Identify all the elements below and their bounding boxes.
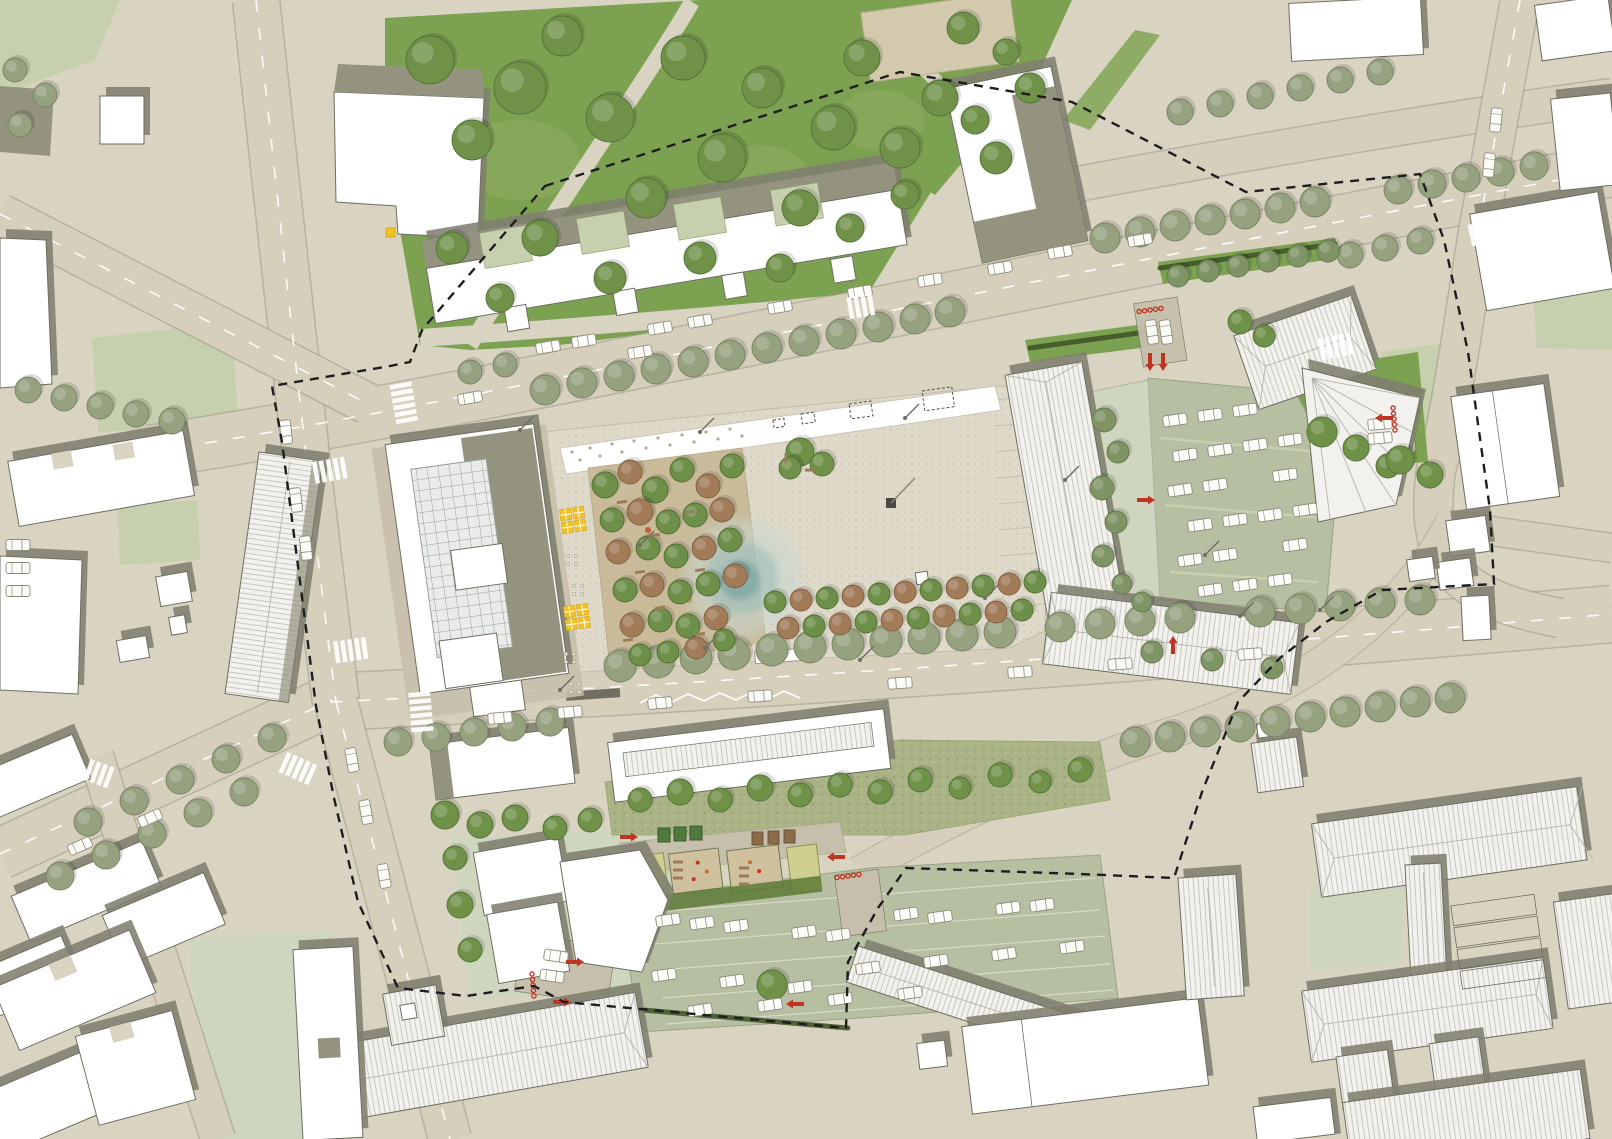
car: [289, 487, 302, 512]
tree-highlight: [505, 808, 517, 820]
mosaic-pebble: [716, 437, 719, 440]
car-body: [1489, 108, 1502, 133]
car: [488, 711, 513, 724]
cafe-table: [564, 652, 568, 656]
tree-highlight: [682, 351, 696, 365]
site-plan-svg: [0, 0, 1612, 1139]
tree-highlight: [450, 895, 462, 907]
tree-highlight: [991, 766, 1002, 777]
tree-highlight: [608, 654, 622, 668]
tree-highlight: [1289, 598, 1303, 612]
light-pole-base: [903, 416, 907, 420]
tree-highlight: [90, 396, 102, 408]
tree-highlight: [188, 803, 201, 816]
tree-highlight: [793, 330, 807, 344]
tree-highlight: [631, 791, 642, 802]
building: [1289, 0, 1430, 61]
tree-highlight: [36, 86, 47, 97]
bench: [739, 875, 749, 878]
tree-highlight: [170, 770, 183, 783]
tree-highlight: [1370, 62, 1382, 74]
mosaic-pebble: [620, 450, 623, 453]
cafe-table: [572, 652, 576, 656]
tree-highlight: [18, 380, 30, 392]
tree-highlight: [1250, 86, 1262, 98]
light-pole-base: [698, 430, 702, 434]
cafe-table: [580, 592, 584, 596]
tree-highlight: [747, 73, 765, 91]
tree-highlight: [871, 586, 881, 596]
tree-highlight: [813, 455, 824, 466]
tree-highlight: [1210, 94, 1222, 106]
car: [1238, 648, 1263, 661]
tree-highlight: [670, 782, 682, 794]
tree-highlight: [1169, 607, 1183, 621]
light-pole-base: [1318, 608, 1322, 612]
tree-highlight: [501, 69, 524, 92]
tree-highlight: [1524, 156, 1537, 169]
play-element: [645, 527, 651, 533]
tree-highlight: [50, 866, 63, 879]
tree-highlight: [791, 786, 802, 797]
car: [748, 690, 773, 703]
tree-highlight: [1290, 78, 1302, 90]
tree-highlight: [1304, 191, 1318, 205]
tree-highlight: [1204, 652, 1214, 662]
tree-highlight: [621, 463, 632, 474]
cafe-table: [574, 562, 578, 566]
mosaic-pebble: [692, 440, 695, 443]
light-pole-base: [983, 596, 987, 600]
tree-highlight: [496, 356, 507, 367]
tree-highlight: [1249, 601, 1263, 615]
tree-highlight: [609, 543, 620, 554]
tree-highlight: [1032, 774, 1042, 784]
tree-highlight: [6, 61, 17, 72]
tree-highlight: [679, 617, 690, 628]
tree-highlight: [1299, 706, 1313, 720]
tree-highlight: [1329, 595, 1343, 609]
mosaic-pebble: [570, 450, 573, 453]
car-body: [1008, 666, 1033, 679]
tree-highlight: [885, 133, 903, 151]
tree-highlight: [988, 604, 998, 614]
tree-highlight: [603, 511, 614, 522]
cafe-table: [577, 682, 581, 686]
tree-highlight: [592, 100, 614, 122]
tree-highlight: [695, 539, 706, 550]
tree-highlight: [840, 218, 853, 231]
tree-highlight: [688, 640, 698, 650]
tree-highlight: [1369, 696, 1383, 710]
mosaic-pebble: [632, 439, 635, 442]
bench: [739, 883, 749, 886]
tree-highlight: [598, 266, 612, 280]
light-pole-base: [1238, 614, 1242, 618]
tree-highlight: [581, 811, 592, 822]
tree-highlight: [830, 323, 844, 337]
mosaic-pebble: [656, 436, 659, 439]
tree-highlight: [950, 623, 964, 637]
tree-highlight: [910, 610, 920, 620]
tree-highlight: [923, 582, 933, 592]
building: [1450, 374, 1566, 510]
cafe-table: [569, 690, 573, 694]
tree-highlight: [927, 85, 943, 101]
tree-highlight: [660, 644, 670, 654]
tree-highlight: [832, 616, 842, 626]
tree-highlight: [162, 411, 174, 423]
tree-highlight: [713, 501, 724, 512]
hip-roof-housing: [1177, 865, 1250, 1000]
tree-highlight: [806, 618, 816, 628]
tree-highlight: [1093, 479, 1104, 490]
tree-highlight: [699, 575, 710, 586]
car-body: [6, 586, 30, 597]
tree-highlight: [667, 42, 687, 62]
light-pole-base: [703, 646, 707, 650]
tree-highlight: [645, 480, 657, 492]
building: [1435, 548, 1480, 590]
kiosk: [386, 228, 395, 237]
tree-highlight: [760, 638, 774, 652]
car: [1482, 153, 1495, 178]
tree-highlight: [793, 592, 803, 602]
car-body: [488, 711, 513, 724]
cafe-table: [566, 554, 570, 558]
tree-highlight: [632, 647, 642, 657]
tree-highlight: [761, 974, 775, 988]
tree-highlight: [595, 475, 607, 487]
tree-highlight: [1071, 761, 1082, 772]
tree-highlight: [936, 608, 946, 618]
bench: [673, 861, 683, 864]
tree-highlight: [756, 337, 770, 351]
cafe-table: [569, 682, 573, 686]
tree-highlight: [1320, 243, 1330, 253]
tree-highlight: [673, 461, 684, 472]
tree-highlight: [1256, 328, 1266, 338]
tree-highlight: [1135, 595, 1144, 604]
tree-highlight: [770, 258, 783, 271]
tree-highlight: [962, 606, 972, 616]
tree-highlight: [895, 185, 908, 198]
cafe-table: [577, 690, 581, 694]
tree-highlight: [1311, 421, 1325, 435]
tree-highlight: [78, 812, 91, 825]
bench: [785, 453, 788, 463]
mosaic-pebble: [680, 433, 683, 436]
tree-highlight: [1410, 231, 1422, 243]
tree-highlight: [884, 612, 894, 622]
tree-highlight: [435, 805, 448, 818]
tree-highlight: [874, 629, 888, 643]
car-body: [6, 563, 30, 574]
light-pole-base: [1063, 478, 1067, 482]
mosaic-pebble: [740, 434, 743, 437]
car: [648, 696, 673, 709]
light-pole-base: [1203, 553, 1207, 557]
tree-highlight: [984, 146, 998, 160]
tree-highlight: [643, 576, 654, 587]
car: [1008, 666, 1033, 679]
car-body: [888, 677, 913, 690]
tree-highlight: [571, 372, 585, 386]
tree-highlight: [787, 195, 803, 211]
roof-court: [576, 211, 629, 254]
tree-highlight: [1420, 465, 1432, 477]
tree-highlight: [711, 791, 722, 802]
car-body: [1368, 431, 1393, 444]
tree-highlight: [547, 21, 565, 39]
bench: [673, 877, 683, 880]
tree-highlight: [1230, 258, 1240, 268]
bench: [673, 869, 683, 872]
tree-highlight: [1144, 644, 1154, 654]
tree-highlight: [216, 749, 229, 762]
tree-highlight: [949, 580, 959, 590]
mosaic-pebble: [704, 430, 707, 433]
roof-court: [673, 197, 726, 240]
tree-highlight: [699, 477, 710, 488]
tree-highlight: [1330, 70, 1342, 82]
car: [888, 677, 913, 690]
light-pole-base: [638, 543, 642, 547]
tree-highlight: [96, 845, 109, 858]
tree-highlight: [457, 125, 475, 143]
cafe-table: [564, 660, 568, 664]
tree-highlight: [1346, 438, 1358, 450]
tree-highlight: [951, 16, 965, 30]
tree-highlight: [1194, 721, 1208, 735]
tree-highlight: [671, 583, 682, 594]
tree-highlight: [262, 728, 275, 741]
tree-highlight: [1095, 411, 1106, 422]
tree-highlight: [440, 236, 454, 250]
tree-highlight: [667, 547, 678, 558]
light-pole-base: [518, 428, 522, 432]
light-pole-base: [858, 658, 862, 662]
tree-highlight: [1014, 602, 1024, 612]
tree-highlight: [1290, 248, 1300, 258]
tree-highlight: [726, 567, 737, 578]
tree-highlight: [1340, 245, 1352, 257]
tree-highlight: [470, 815, 482, 827]
car: [1108, 658, 1133, 671]
tree-highlight: [719, 344, 733, 358]
tree-highlight: [1456, 168, 1469, 181]
tree-highlight: [1390, 450, 1403, 463]
tree-highlight: [490, 288, 503, 301]
tree-highlight: [1001, 576, 1011, 586]
tree-highlight: [1234, 203, 1248, 217]
tree-highlight: [623, 616, 634, 627]
tree-highlight: [1129, 221, 1143, 235]
tree-highlight: [780, 620, 790, 630]
tree-highlight: [659, 513, 670, 524]
tree-highlight: [911, 771, 922, 782]
tree-highlight: [527, 225, 543, 241]
tree-highlight: [464, 722, 477, 735]
mosaic-pebble: [644, 446, 647, 449]
tree-highlight: [939, 301, 953, 315]
mosaic-pebble: [668, 443, 671, 446]
tree-highlight: [446, 849, 457, 860]
mosaic-pebble: [610, 442, 613, 445]
tree-highlight: [1108, 514, 1118, 524]
car-body: [648, 696, 673, 709]
tree-highlight: [845, 588, 855, 598]
tree-highlight: [1269, 197, 1283, 211]
tree-highlight: [1124, 731, 1138, 745]
tree-highlight: [819, 590, 829, 600]
tree-highlight: [831, 776, 842, 787]
tree-highlight: [1089, 613, 1103, 627]
car: [299, 535, 312, 560]
car: [6, 563, 30, 574]
tree-highlight: [1388, 180, 1401, 193]
car: [1368, 431, 1393, 444]
car-body: [1238, 648, 1263, 661]
car-body: [1108, 658, 1133, 671]
cafe-table: [566, 562, 570, 566]
tree-highlight: [798, 635, 812, 649]
car-body: [1482, 153, 1495, 178]
tree-highlight: [1199, 209, 1213, 223]
tree-highlight: [630, 502, 642, 514]
tree-highlight: [1159, 726, 1173, 740]
car: [6, 586, 30, 597]
tree-highlight: [608, 365, 622, 379]
tree-highlight: [688, 246, 702, 260]
car: [1489, 108, 1502, 133]
building: [1534, 0, 1612, 61]
building: [154, 562, 198, 607]
light-pole-base: [558, 688, 562, 692]
tree-highlight: [1170, 102, 1182, 114]
cafe-table: [580, 584, 584, 588]
tree-highlight: [721, 531, 732, 542]
tree-highlight: [952, 780, 962, 790]
building: [1550, 83, 1612, 190]
tree-highlight: [704, 140, 726, 162]
tree-highlight: [1200, 263, 1210, 273]
tree-highlight: [540, 712, 553, 725]
tree-highlight: [1264, 711, 1278, 725]
car-body: [299, 535, 312, 560]
tree-highlight: [124, 791, 137, 804]
cafe-table: [574, 554, 578, 558]
tree-highlight: [871, 783, 882, 794]
tree-highlight: [534, 379, 548, 393]
tree-highlight: [412, 42, 434, 64]
mosaic-pebble: [728, 427, 731, 430]
tree-highlight: [1375, 238, 1387, 250]
tree-highlight: [1334, 701, 1348, 715]
building: [485, 892, 576, 983]
tree-highlight: [388, 732, 401, 745]
cafe-table: [572, 584, 576, 588]
tree-highlight: [1094, 227, 1108, 241]
building: [293, 937, 369, 1139]
tree-highlight: [767, 594, 777, 604]
tree-highlight: [1170, 268, 1180, 278]
tree-highlight: [1110, 444, 1120, 454]
tree-highlight: [707, 609, 718, 620]
bench: [739, 867, 749, 870]
tree-highlight: [858, 614, 868, 624]
mosaic-pebble: [598, 454, 601, 457]
tree-highlight: [11, 116, 22, 127]
tree-highlight: [723, 457, 734, 468]
tree-highlight: [651, 611, 662, 622]
tree-highlight: [1027, 574, 1037, 584]
tree-highlight: [616, 581, 627, 592]
tree-highlight: [126, 404, 138, 416]
tree-highlight: [849, 45, 865, 61]
tree-highlight: [750, 778, 762, 790]
tree-highlight: [867, 316, 881, 330]
tree-highlight: [996, 42, 1008, 54]
car-body: [289, 487, 302, 512]
building: [115, 626, 156, 663]
car-body: [748, 690, 773, 703]
car: [6, 540, 30, 551]
tree-highlight: [1404, 691, 1418, 705]
mosaic-pebble: [588, 446, 591, 449]
site-plan: [0, 0, 1612, 1139]
tree-highlight: [897, 584, 907, 594]
tree-highlight: [1049, 616, 1063, 630]
bench: [805, 469, 815, 472]
car-body: [558, 705, 583, 718]
tree-highlight: [1409, 589, 1423, 603]
tree-highlight: [1095, 548, 1105, 558]
tree-highlight: [975, 578, 985, 588]
tree-highlight: [1231, 313, 1242, 324]
car: [558, 705, 583, 718]
tree-highlight: [1260, 253, 1270, 263]
cafe-table: [572, 660, 576, 664]
tree-highlight: [790, 442, 803, 455]
tree-highlight: [1115, 577, 1124, 586]
tree-highlight: [54, 388, 66, 400]
building: [100, 87, 150, 144]
building: [0, 229, 58, 388]
tree-highlight: [645, 358, 659, 372]
tree-highlight: [234, 782, 247, 795]
tree-highlight: [631, 183, 649, 201]
mosaic-pebble: [578, 458, 581, 461]
tree-highlight: [817, 112, 837, 132]
tree-highlight: [461, 363, 472, 374]
tree-highlight: [1439, 687, 1453, 701]
tree-highlight: [904, 308, 918, 322]
tree-highlight: [1019, 77, 1033, 91]
tree-highlight: [461, 941, 472, 952]
car-body: [6, 540, 30, 551]
tree-highlight: [546, 819, 557, 830]
tree-highlight: [1164, 215, 1178, 229]
tree-highlight: [965, 110, 978, 123]
cafe-table: [572, 592, 576, 596]
